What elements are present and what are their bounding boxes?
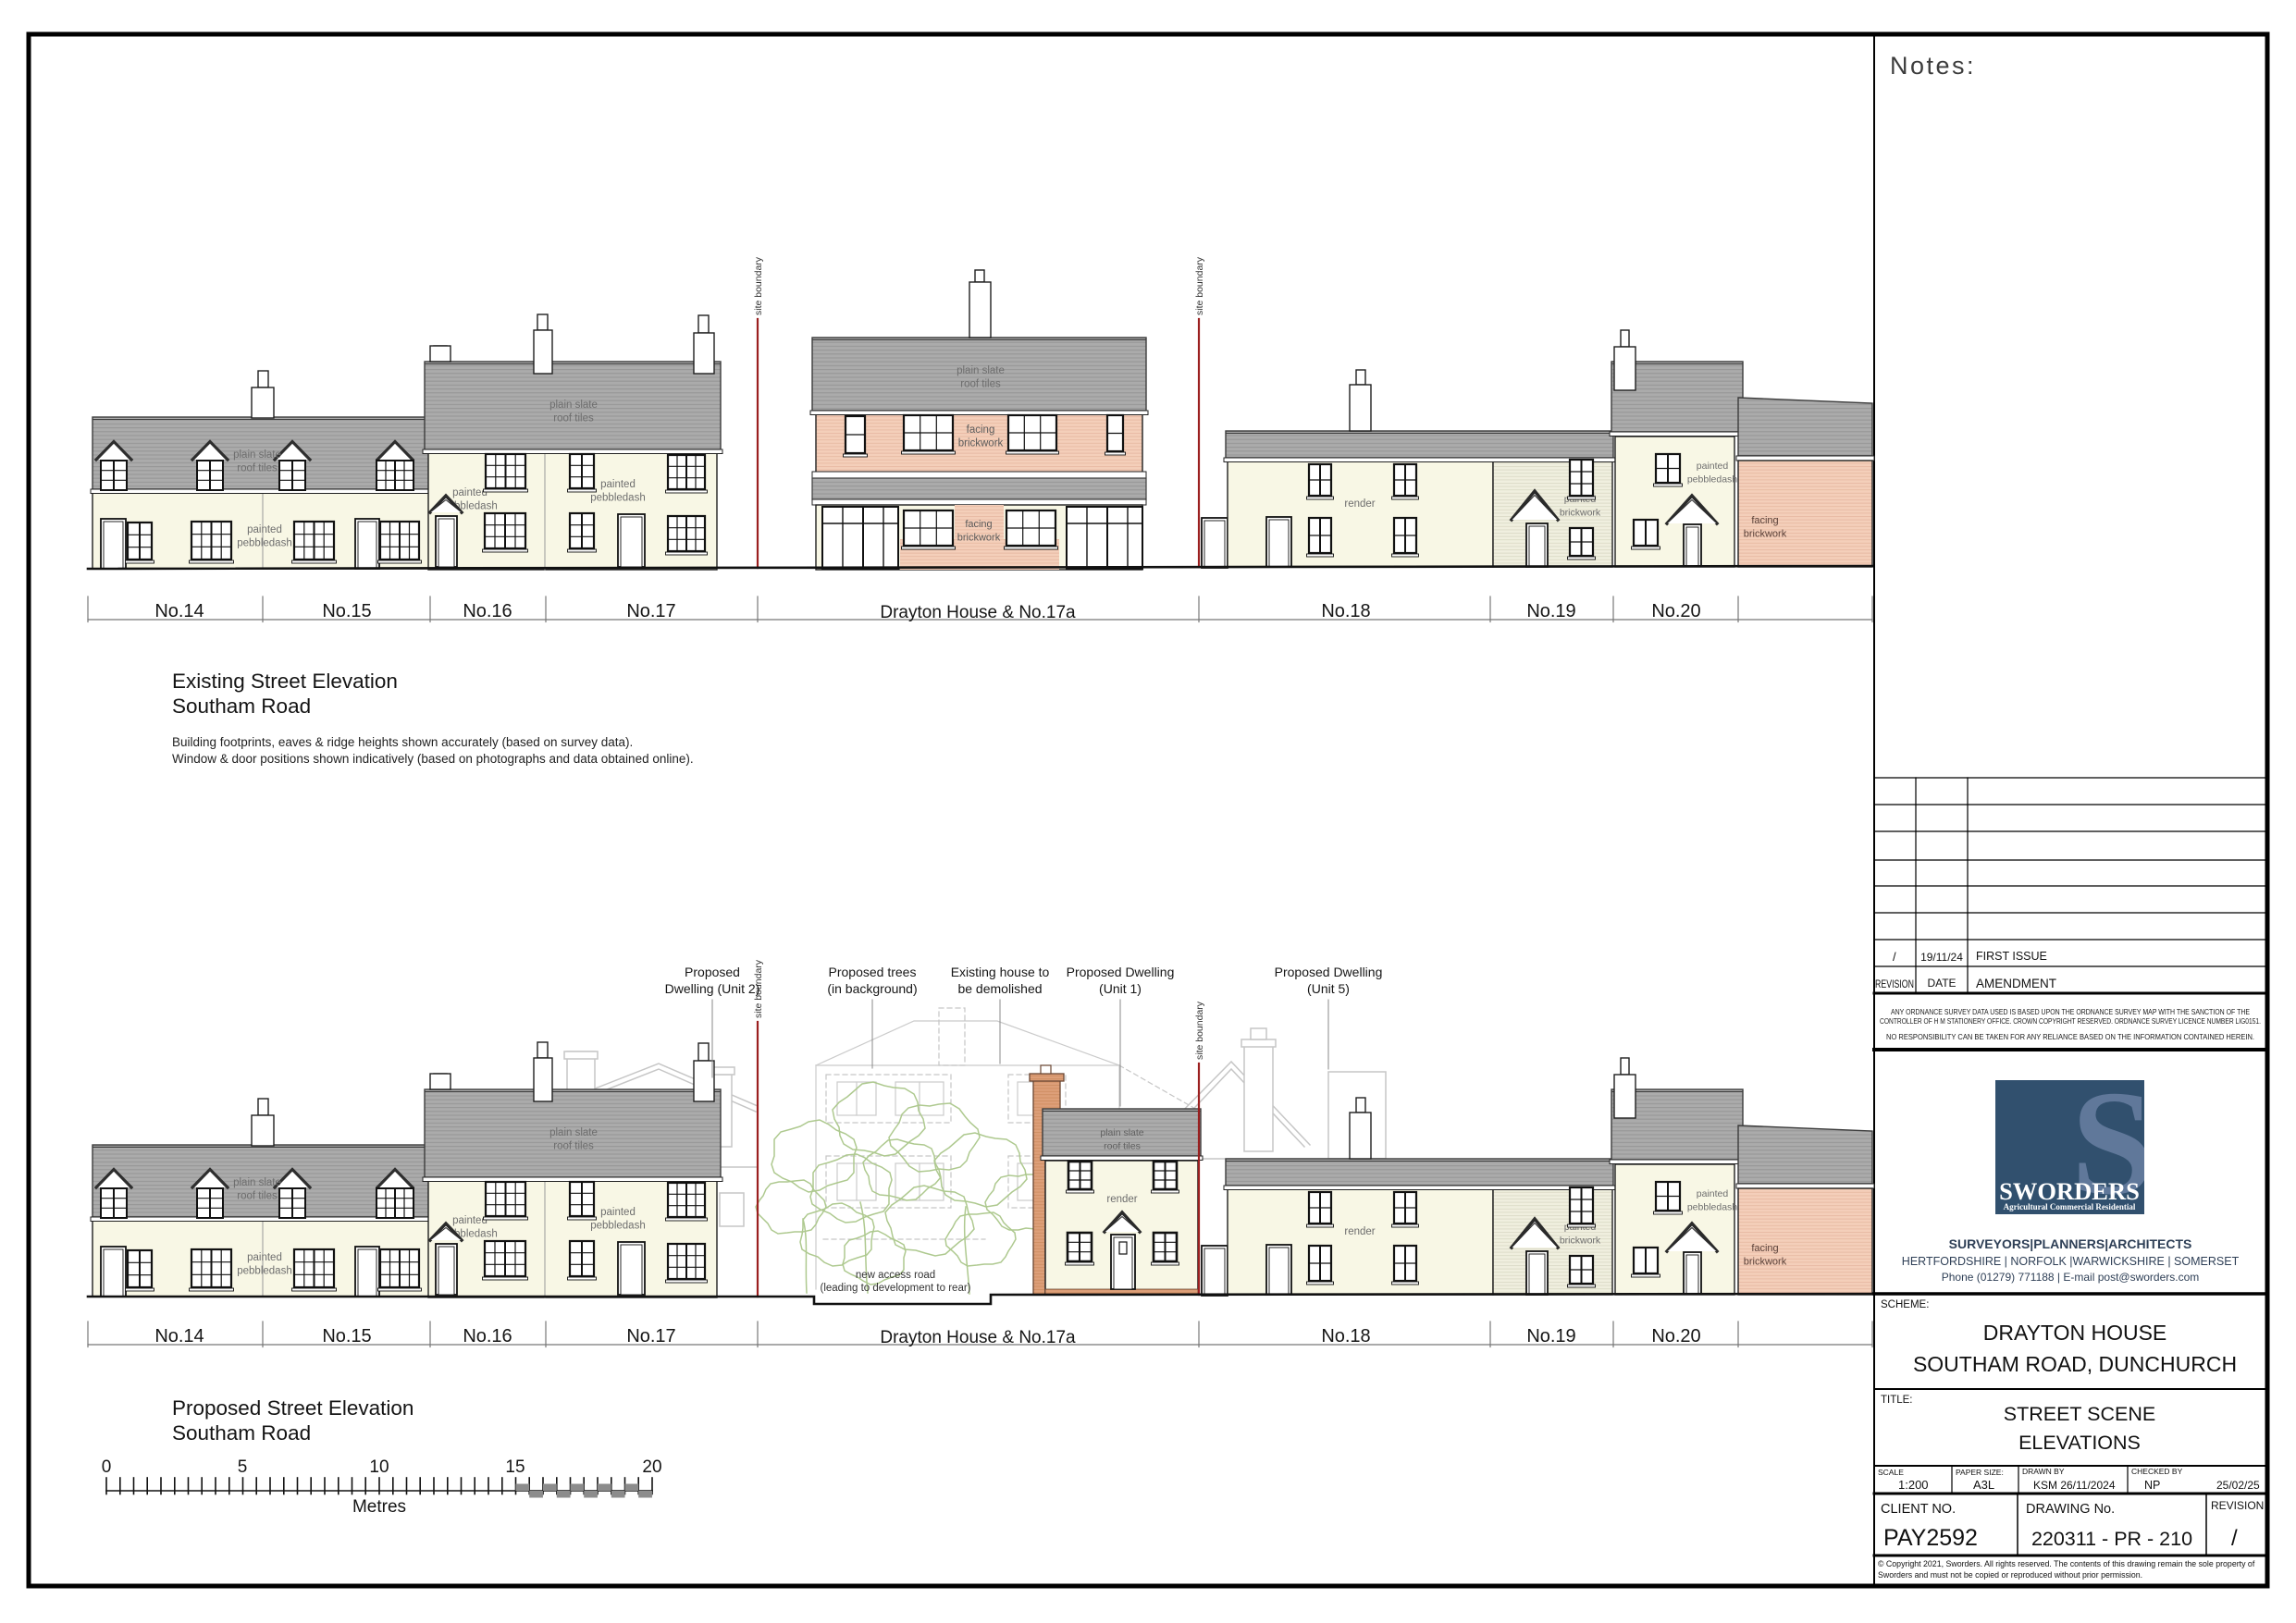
svg-text:No.16: No.16 bbox=[463, 601, 512, 621]
svg-text:SWORDERS: SWORDERS bbox=[1999, 1177, 2140, 1205]
svg-text:render: render bbox=[1344, 498, 1375, 510]
svg-text:NO RESPONSIBILITY CAN BE TAKEN: NO RESPONSIBILITY CAN BE TAKEN FOR ANY R… bbox=[1886, 1032, 2254, 1041]
svg-text:No.16: No.16 bbox=[463, 1326, 512, 1346]
svg-text:No.14: No.14 bbox=[154, 1326, 204, 1346]
svg-text:No.20: No.20 bbox=[1651, 1326, 1700, 1346]
svg-text:No.20: No.20 bbox=[1651, 601, 1700, 621]
svg-text:render: render bbox=[1106, 1194, 1137, 1205]
svg-text:No.17: No.17 bbox=[626, 601, 675, 621]
svg-text:render: render bbox=[1344, 1226, 1375, 1237]
svg-text:site boundary: site boundary bbox=[753, 256, 764, 315]
svg-text:Agricultural Commercial Reside: Agricultural Commercial Residential bbox=[2004, 1202, 2136, 1211]
svg-text:site boundary: site boundary bbox=[1194, 1001, 1205, 1060]
svg-text:No.18: No.18 bbox=[1321, 601, 1370, 621]
svg-text:site boundary: site boundary bbox=[1194, 256, 1205, 315]
svg-text:No.15: No.15 bbox=[322, 1326, 371, 1346]
svg-text:No.14: No.14 bbox=[154, 601, 204, 621]
svg-text:No.19: No.19 bbox=[1526, 601, 1575, 621]
svg-text:SURVEYORS|PLANNERS|ARCHITECTSH: SURVEYORS|PLANNERS|ARCHITECTSHERTFORDSHI… bbox=[1902, 1236, 2240, 1284]
svg-text:No.17: No.17 bbox=[626, 1326, 675, 1346]
svg-text:Drayton House & No.17a: Drayton House & No.17a bbox=[880, 1328, 1076, 1347]
svg-text:No.15: No.15 bbox=[322, 601, 371, 621]
svg-text:SCHEME:: SCHEME: bbox=[1881, 1299, 1929, 1310]
svg-text:TITLE:: TITLE: bbox=[1881, 1395, 1913, 1406]
svg-text:ANY ORDNANCE SURVEY DATA USED: ANY ORDNANCE SURVEY DATA USED IS BASED U… bbox=[1891, 1007, 2250, 1016]
svg-text:No.19: No.19 bbox=[1526, 1326, 1575, 1346]
svg-text:No.18: No.18 bbox=[1321, 1326, 1370, 1346]
svg-text:Drayton House & No.17a: Drayton House & No.17a bbox=[880, 603, 1076, 622]
svg-text:CONTROLLER OF H M STATIONERY O: CONTROLLER OF H M STATIONERY OFFICE. CRO… bbox=[1880, 1016, 2261, 1026]
svg-text:Notes:: Notes: bbox=[1890, 52, 1976, 80]
